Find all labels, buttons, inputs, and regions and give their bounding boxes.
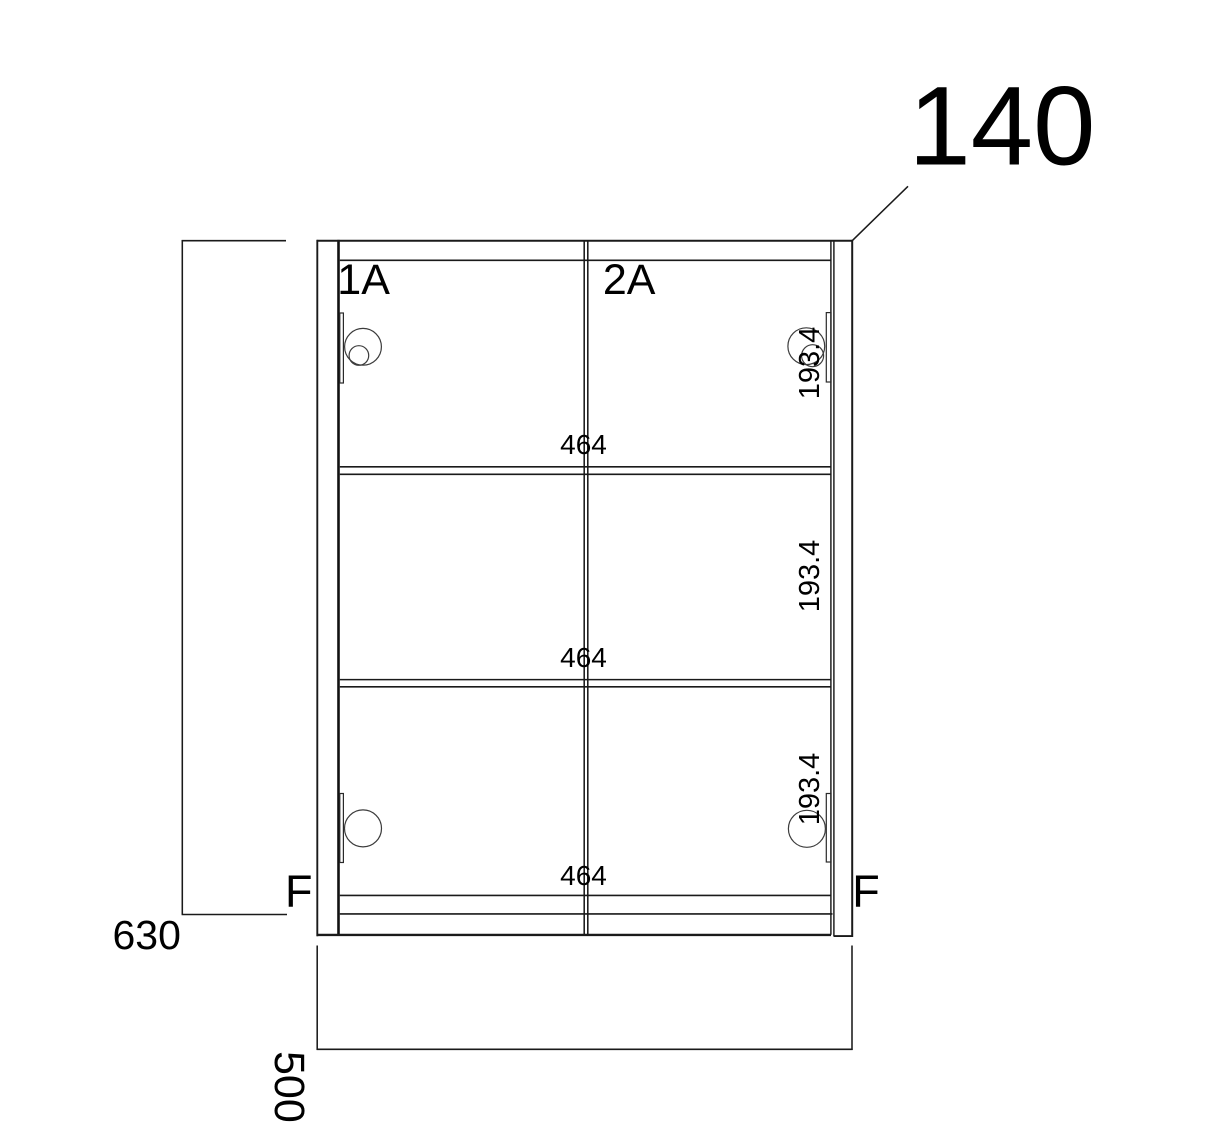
svg-text:193.4: 193.4: [794, 753, 826, 826]
svg-text:F: F: [285, 866, 313, 917]
svg-text:464: 464: [560, 642, 607, 673]
svg-text:464: 464: [560, 429, 607, 460]
svg-text:630: 630: [113, 912, 181, 958]
svg-text:500: 500: [265, 1051, 313, 1123]
svg-text:464: 464: [560, 860, 607, 891]
svg-text:193.4: 193.4: [794, 327, 826, 400]
svg-text:140: 140: [909, 63, 1096, 188]
svg-text:F: F: [852, 866, 880, 917]
svg-text:2A: 2A: [603, 256, 656, 304]
svg-text:193.4: 193.4: [794, 540, 826, 613]
svg-text:1A: 1A: [337, 256, 390, 304]
